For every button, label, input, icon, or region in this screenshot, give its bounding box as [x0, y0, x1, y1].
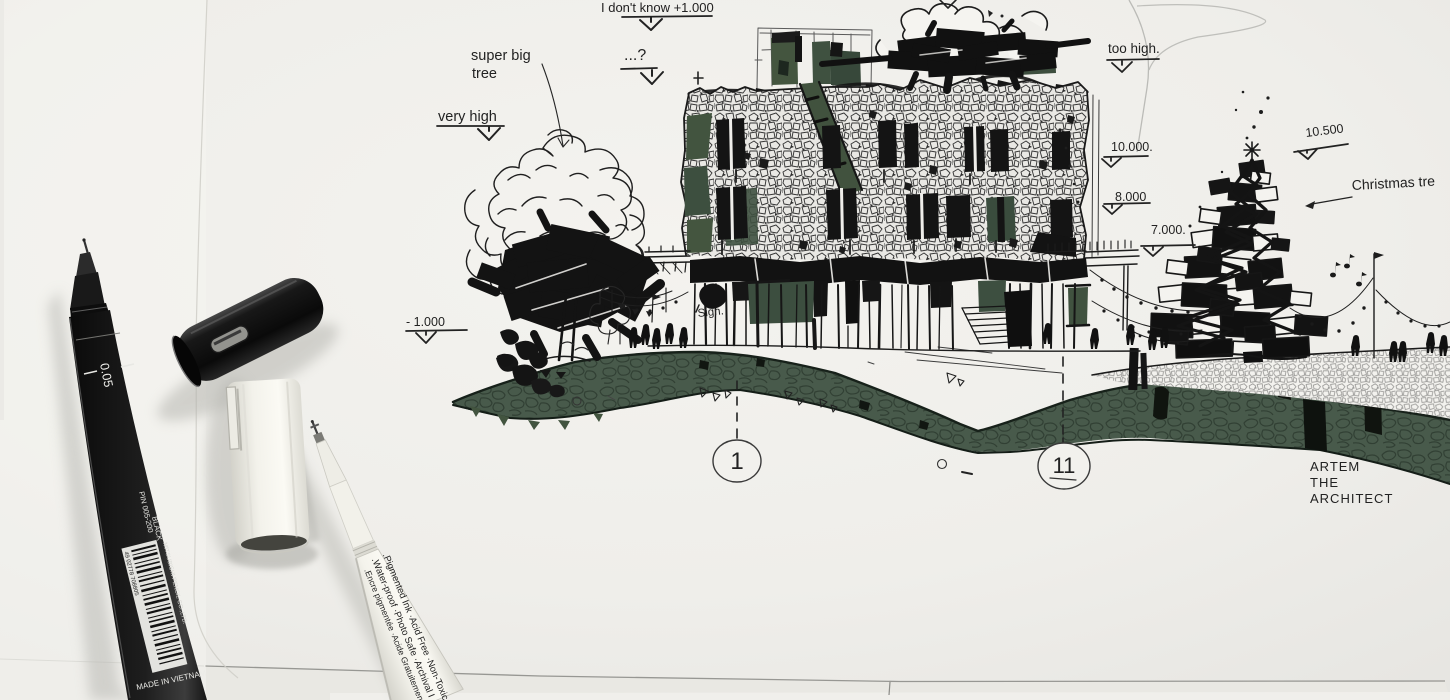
svg-text:ARCHITECT: ARCHITECT: [1310, 491, 1393, 506]
svg-text:tree: tree: [472, 66, 497, 82]
svg-text:...?: ...?: [624, 47, 646, 64]
svg-text:I don't know +1.000: I don't know +1.000: [601, 0, 714, 15]
svg-text:8.000: 8.000: [1115, 190, 1146, 204]
svg-text:7.000.: 7.000.: [1151, 223, 1186, 237]
svg-text:ARTEM: ARTEM: [1310, 459, 1360, 474]
svg-text:1: 1: [730, 448, 743, 475]
svg-text:super big: super big: [471, 48, 531, 64]
svg-text:very high: very high: [438, 109, 497, 125]
svg-text:11: 11: [1053, 453, 1076, 478]
svg-text:- 1.000: - 1.000: [406, 315, 445, 329]
svg-text:too high.: too high.: [1108, 41, 1160, 56]
svg-text:THE: THE: [1310, 475, 1339, 490]
svg-text:10.000.: 10.000.: [1111, 140, 1153, 154]
